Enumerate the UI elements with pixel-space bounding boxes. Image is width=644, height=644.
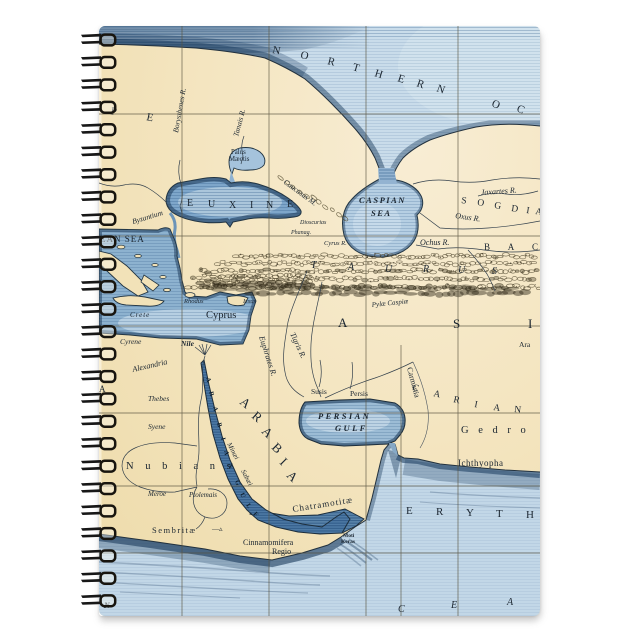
svg-text:Cyprus: Cyprus (206, 310, 236, 321)
svg-text:Persis: Persis (350, 389, 368, 398)
svg-text:Syene: Syene (148, 422, 166, 431)
svg-text:Dioscurias: Dioscurias (299, 220, 327, 226)
svg-text:E: E (187, 198, 193, 209)
svg-text:Y: Y (466, 507, 474, 519)
svg-text:Palus: Palus (231, 149, 246, 156)
svg-text:B A C: B A C (484, 242, 546, 252)
svg-text:Regio: Regio (272, 547, 291, 556)
svg-text:U: U (385, 264, 393, 275)
svg-text:Phanag.: Phanag. (290, 230, 311, 236)
svg-text:Mæotis: Mæotis (229, 156, 250, 163)
svg-text:N u b i a n s: N u b i a n s (126, 461, 235, 472)
svg-text:E: E (406, 505, 413, 517)
svg-text:G e d r o: G e d r o (461, 425, 529, 436)
svg-text:Ara: Ara (519, 340, 531, 349)
svg-text:Crete: Crete (130, 311, 150, 319)
svg-text:Cyrene: Cyrene (120, 337, 142, 346)
svg-text:E: E (450, 600, 457, 611)
svg-text:Issus: Issus (242, 298, 256, 305)
svg-text:—▵: —▵ (211, 525, 223, 533)
svg-text:U: U (208, 199, 216, 210)
svg-text:I: I (528, 316, 532, 331)
svg-text:Thebes: Thebes (148, 394, 169, 403)
svg-text:S: S (453, 316, 460, 331)
svg-text:S: S (492, 266, 497, 277)
svg-text:C: C (398, 604, 405, 615)
svg-text:Ptolemais: Ptolemais (188, 491, 217, 499)
svg-text:A: A (347, 262, 355, 273)
svg-text:Ichthyopha: Ichthyopha (458, 458, 504, 468)
svg-text:U: U (458, 265, 466, 276)
svg-text:SEA: SEA (371, 208, 392, 218)
svg-text:A: A (338, 315, 348, 330)
svg-text:Susis: Susis (311, 387, 327, 396)
svg-text:Ochus R.: Ochus R. (420, 238, 449, 247)
svg-text:Rhodus: Rhodus (183, 298, 204, 305)
svg-text:A: A (506, 597, 514, 608)
svg-text:H: H (526, 509, 534, 521)
svg-text:GULF: GULF (335, 423, 368, 433)
svg-text:E: E (287, 199, 293, 210)
svg-text:N: N (266, 200, 273, 211)
svg-text:A: A (535, 207, 543, 218)
svg-text:CASPIAN: CASPIAN (359, 195, 406, 205)
svg-text:Nile: Nile (180, 339, 195, 348)
svg-text:Cinnamomifera: Cinnamomifera (243, 538, 294, 547)
svg-text:N: N (514, 405, 522, 416)
svg-text:Sembritæ: Sembritæ (152, 525, 197, 535)
svg-text:X: X (229, 200, 237, 211)
svg-text:R: R (422, 264, 429, 275)
svg-text:R: R (436, 506, 444, 518)
svg-text:Meroe: Meroe (147, 490, 166, 498)
svg-text:Keras: Keras (341, 539, 355, 545)
svg-text:Cyrus R.: Cyrus R. (324, 240, 347, 247)
svg-text:I: I (250, 200, 253, 211)
svg-text:T: T (496, 508, 503, 520)
svg-text:PERSIAN: PERSIAN (318, 411, 371, 421)
